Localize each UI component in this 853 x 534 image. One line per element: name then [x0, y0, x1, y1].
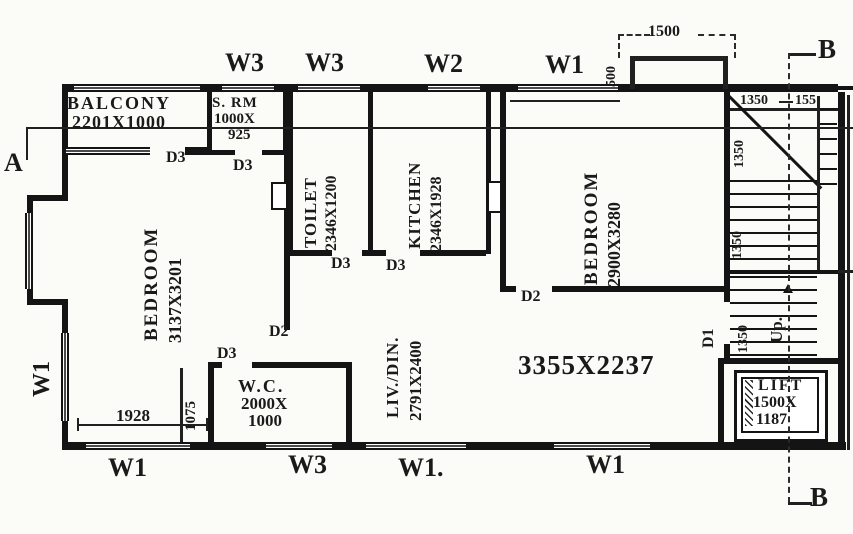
- section-label-b-top: B: [818, 36, 836, 63]
- section-line-b-bottom: [788, 502, 812, 505]
- door-tag-d3-toilet: D3: [331, 256, 351, 272]
- dim-1350-h: 1350: [740, 94, 768, 108]
- window-tag-w3-bottom: W3: [288, 452, 327, 478]
- wall-srm-bottom-a: [207, 150, 235, 155]
- window-tag-w1-bedroom: W1: [545, 52, 584, 78]
- bedroomR-window-frame: [510, 100, 620, 102]
- room-label-wc: W.C.: [238, 377, 284, 395]
- window-bottom-w3: [266, 442, 332, 450]
- terrace-top: [630, 56, 728, 61]
- stair-mid-stub: [838, 270, 853, 273]
- dim-1928-tick-a: [77, 418, 79, 431]
- dim-1350-v2: 1350: [731, 203, 745, 259]
- wall-balcony-divider: [185, 147, 207, 155]
- room-label-kitchen: KITCHEN: [406, 99, 423, 249]
- section-line-a-drop: [26, 127, 28, 160]
- room-dim-livdin: 2791X2400: [407, 277, 424, 421]
- room-label-balcony: BALCONY: [67, 94, 171, 112]
- dim-1928: 1928: [116, 407, 150, 424]
- wall-stair-bottom: [718, 358, 844, 364]
- room-dim-wc-1: 2000X: [241, 395, 287, 412]
- window-bottom-w1b: [366, 442, 466, 450]
- dim-155: 155: [795, 94, 816, 108]
- dim-1500-line-a: [618, 34, 650, 36]
- room-label-bedroomR: BEDROOM: [582, 113, 601, 285]
- bay-top: [27, 195, 68, 201]
- dim-1500-tick-b: [734, 34, 736, 58]
- room-dim-bedroomR: 2900X3280: [605, 111, 623, 287]
- door-tag-d3-balcony: D3: [166, 150, 186, 166]
- wall-bedroomR-bottom-a: [500, 286, 516, 292]
- room-label-toilet: TOILET: [302, 100, 319, 248]
- bay-bottom: [27, 299, 68, 305]
- room-label-lift: LIFT: [758, 378, 803, 394]
- up-label: Up.: [768, 293, 785, 343]
- window-toilet-top: [298, 84, 360, 92]
- wall-bedroomR-bottom-b: [552, 286, 730, 292]
- window-tag-w3-toilet: W3: [305, 50, 344, 76]
- door-tag-d2-livdin: D2: [269, 324, 289, 340]
- wall-bedroomR-left: [500, 92, 506, 292]
- terrace-right: [723, 56, 728, 89]
- room-dim-toilet: 2346X1200: [324, 97, 340, 251]
- section-line-b: [788, 53, 790, 503]
- dim-1075: 1075: [184, 377, 199, 431]
- section-label-b-bottom: B: [810, 484, 828, 511]
- window-bay: [25, 213, 33, 289]
- scan-specks: [0, 0, 2, 2]
- door-tag-d1-stair: D1: [701, 302, 717, 348]
- window-tag-w2-kitchen: W2: [424, 51, 463, 77]
- room-label-srm: S. RM: [212, 96, 258, 111]
- window-balcony-divider: [66, 147, 150, 155]
- room-label-bedroomL: BEDROOM: [142, 183, 161, 341]
- stair-landing-line: [730, 270, 838, 274]
- door-tag-d3-wc: D3: [217, 346, 237, 362]
- window-tag-w1-bottom-b: W1.: [398, 455, 444, 481]
- room-dim-srm-1: 1000X: [214, 112, 255, 127]
- room-dim-wc-2: 1000: [248, 412, 282, 429]
- section-line-b-top: [788, 53, 816, 56]
- room-dim-kitchen: 2346X1928: [429, 96, 445, 252]
- window-bedroom-top: [518, 84, 618, 92]
- stair-treads-landing: [820, 108, 837, 190]
- dim-1350-v3: 1350: [737, 295, 751, 353]
- room-dim-hall: 3355X2237: [518, 352, 655, 379]
- room-dim-lift-1: 1500X: [753, 395, 797, 411]
- wall-lift-left: [718, 358, 724, 450]
- wall-wc-right: [346, 362, 352, 450]
- dim-1928-tick-b: [206, 418, 208, 431]
- section-label-a: A: [4, 150, 23, 176]
- terrace-left: [630, 56, 635, 89]
- window-tag-w1-left: W1: [30, 341, 54, 397]
- wall-wc-left: [208, 362, 214, 450]
- dim-1350-tick: [779, 101, 793, 103]
- wall-tk-bottom-b: [362, 250, 386, 256]
- window-tag-w3-srm: W3: [225, 50, 264, 76]
- wall-toilet-kitchen: [368, 92, 373, 254]
- window-tag-w1-bottom-c: W1: [586, 452, 625, 478]
- dim-500: 500: [605, 49, 619, 87]
- door-tag-d3-kitchen: D3: [386, 258, 406, 274]
- dim-1500: 1500: [648, 24, 680, 40]
- door-tag-d3-srm: D3: [233, 158, 253, 174]
- room-dim-balcony: 2201X1000: [72, 113, 166, 131]
- room-dim-srm-2: 925: [228, 128, 251, 143]
- dim-1500-line-b: [698, 34, 736, 36]
- room-dim-bedroomL: 3137X3201: [166, 181, 184, 343]
- window-srm-top: [222, 84, 274, 92]
- dim-1350-v1: 1350: [733, 114, 747, 168]
- bedroomL-wall-nub: [271, 182, 288, 210]
- floor-plan-canvas: A B B W3 W3 W2 W1 W1 W1 W3 W1. W1 BALCON…: [0, 0, 853, 534]
- window-left-lower: [61, 333, 69, 421]
- window-bottom-w1c: [554, 442, 650, 450]
- wall-top-stub: [838, 86, 853, 90]
- window-balcony-top: [74, 84, 200, 92]
- window-tag-w1-bottom-a: W1: [108, 455, 147, 481]
- window-bottom-w1a: [86, 442, 190, 450]
- wall-kitchen-right: [486, 92, 491, 254]
- room-dim-lift-2: 1187: [756, 412, 787, 428]
- wall-wc-top-b: [252, 362, 352, 368]
- door-tag-d2-bedroom: D2: [521, 289, 541, 305]
- window-kitchen-top: [428, 84, 480, 92]
- room-label-livdin: LIV./DIN.: [384, 280, 401, 418]
- lift-hatch: [745, 380, 753, 426]
